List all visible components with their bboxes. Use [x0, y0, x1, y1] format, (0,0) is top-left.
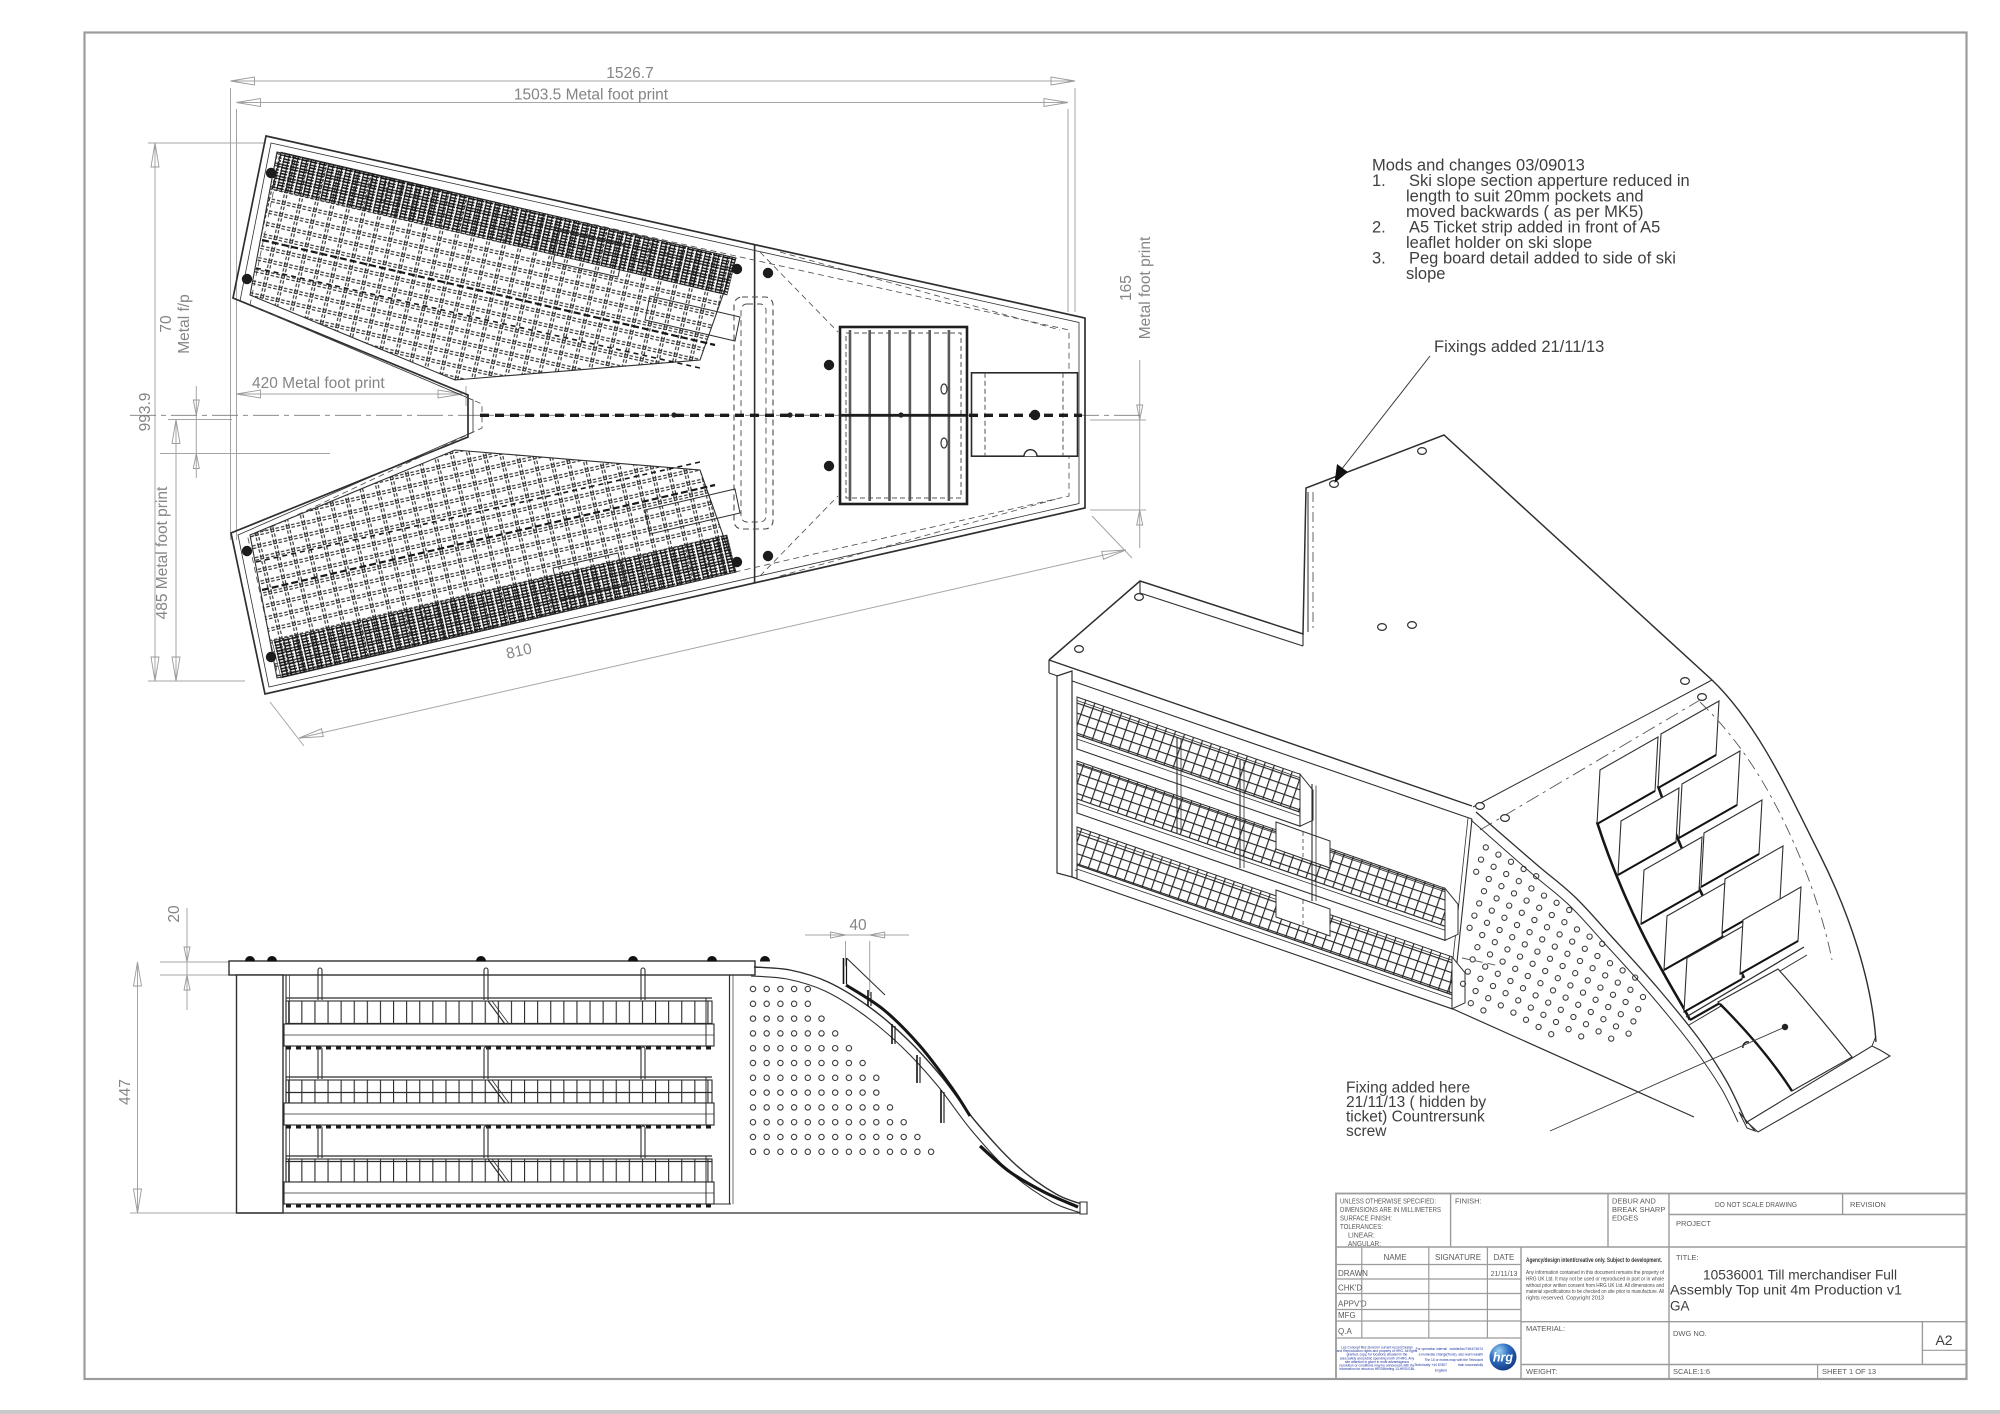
- svg-text:PROJECT: PROJECT: [1676, 1219, 1711, 1228]
- svg-text:For operation internal: For operation internal: [1416, 1347, 1448, 1351]
- svg-text:Any information contained in t: Any information contained in this docume…: [1526, 1270, 1664, 1276]
- svg-text:Assembly Top unit 4m Productio: Assembly Top unit 4m Production v1: [1670, 1283, 1902, 1298]
- svg-text:20: 20: [166, 905, 183, 923]
- svg-text:hrg: hrg: [1493, 1351, 1514, 1365]
- svg-text:FINISH:: FINISH:: [1455, 1197, 1482, 1206]
- svg-text:SIGNATURE: SIGNATURE: [1435, 1253, 1481, 1262]
- svg-text:Q.A: Q.A: [1338, 1327, 1352, 1336]
- svg-text:mobile/fax/7464/74674: mobile/fax/7464/74674: [1450, 1347, 1484, 1351]
- svg-text:slope: slope: [1406, 265, 1445, 283]
- svg-text:993.9: 993.9: [137, 393, 154, 432]
- svg-text:Fixings added 21/11/13: Fixings added 21/11/13: [1434, 338, 1604, 356]
- svg-text:GA: GA: [1670, 1299, 1690, 1314]
- svg-text:485 Metal foot print: 485 Metal foot print: [154, 486, 171, 619]
- svg-text:2.: 2.: [1372, 219, 1386, 237]
- svg-text:165: 165: [1118, 275, 1135, 301]
- svg-text:Peg board detail added to side: Peg board detail added to side of ski: [1409, 250, 1676, 268]
- svg-text:train successfully: train successfully: [1458, 1363, 1483, 1367]
- svg-text:material specifications to be: material specifications to be checked on…: [1526, 1289, 1664, 1295]
- svg-text:Metal f/p: Metal f/p: [176, 294, 193, 353]
- svg-text:APPV'D: APPV'D: [1338, 1300, 1367, 1309]
- svg-text:10536001 Till merchandiser Ful: 10536001 Till merchandiser Full: [1703, 1268, 1897, 1283]
- svg-text:1503.5 Metal foot print: 1503.5 Metal foot print: [514, 87, 669, 104]
- svg-text:(Tools), also learn wealth: (Tools), also learn wealth: [1447, 1352, 1484, 1356]
- svg-text:A2: A2: [1935, 1332, 1952, 1348]
- svg-text:CHK'D: CHK'D: [1338, 1284, 1362, 1293]
- svg-text:SHEET 1 OF 13: SHEET 1 OF 13: [1822, 1367, 1876, 1376]
- svg-text:WEIGHT:: WEIGHT:: [1526, 1367, 1557, 1376]
- svg-text:a map with the Telecount: a map with the Telecount: [1447, 1358, 1483, 1362]
- svg-text:1.: 1.: [1372, 172, 1386, 190]
- svg-text:Metal foot print: Metal foot print: [1137, 236, 1154, 339]
- svg-text:1526.7: 1526.7: [606, 65, 653, 82]
- svg-text:a moderate change: a moderate change: [1419, 1352, 1448, 1356]
- svg-text:DWG NO.: DWG NO.: [1673, 1329, 1707, 1338]
- svg-text:DATE: DATE: [1494, 1253, 1515, 1262]
- svg-text:EDGES: EDGES: [1612, 1214, 1638, 1223]
- svg-text:3.: 3.: [1372, 250, 1386, 268]
- svg-text:without prior written consent: without prior written consent from HRG U…: [1525, 1283, 1664, 1289]
- svg-text:England: England: [1435, 1369, 1447, 1373]
- svg-text:447: 447: [117, 1079, 134, 1105]
- svg-text:Technically +44 67807: Technically +44 67807: [1414, 1363, 1447, 1367]
- svg-text:REVISION: REVISION: [1850, 1200, 1886, 1209]
- svg-text:SCALE:1:6: SCALE:1:6: [1673, 1367, 1710, 1376]
- svg-text:DO NOT SCALE DRAWING: DO NOT SCALE DRAWING: [1715, 1200, 1797, 1209]
- svg-text:TITLE:: TITLE:: [1676, 1253, 1699, 1262]
- svg-text:HRG UK Ltd. It may not be used: HRG UK Ltd. It may not be used or reprod…: [1526, 1276, 1664, 1282]
- svg-text:21/11/13: 21/11/13: [1491, 1271, 1518, 1278]
- svg-text:MATERIAL:: MATERIAL:: [1526, 1324, 1565, 1333]
- svg-text:information for about us HRG/B: information for about us HRG/Briefing 13…: [1339, 1367, 1415, 1371]
- svg-text:40: 40: [849, 917, 867, 934]
- svg-text:Agency/design intent/creative: Agency/design intent/creative only. Subj…: [1526, 1257, 1662, 1264]
- svg-text:The 10 or more: The 10 or more: [1424, 1358, 1447, 1362]
- svg-text:ANGULAR:: ANGULAR:: [1348, 1239, 1381, 1248]
- svg-text:70: 70: [158, 315, 175, 333]
- svg-text:rights reserved. Copyright 201: rights reserved. Copyright 2013: [1526, 1296, 1604, 1302]
- svg-text:NAME: NAME: [1383, 1253, 1406, 1262]
- svg-text:420 Metal foot print: 420 Metal foot print: [252, 375, 385, 392]
- svg-text:DRAWN: DRAWN: [1338, 1269, 1368, 1278]
- svg-text:screw: screw: [1346, 1123, 1387, 1140]
- svg-text:MFG: MFG: [1338, 1311, 1356, 1320]
